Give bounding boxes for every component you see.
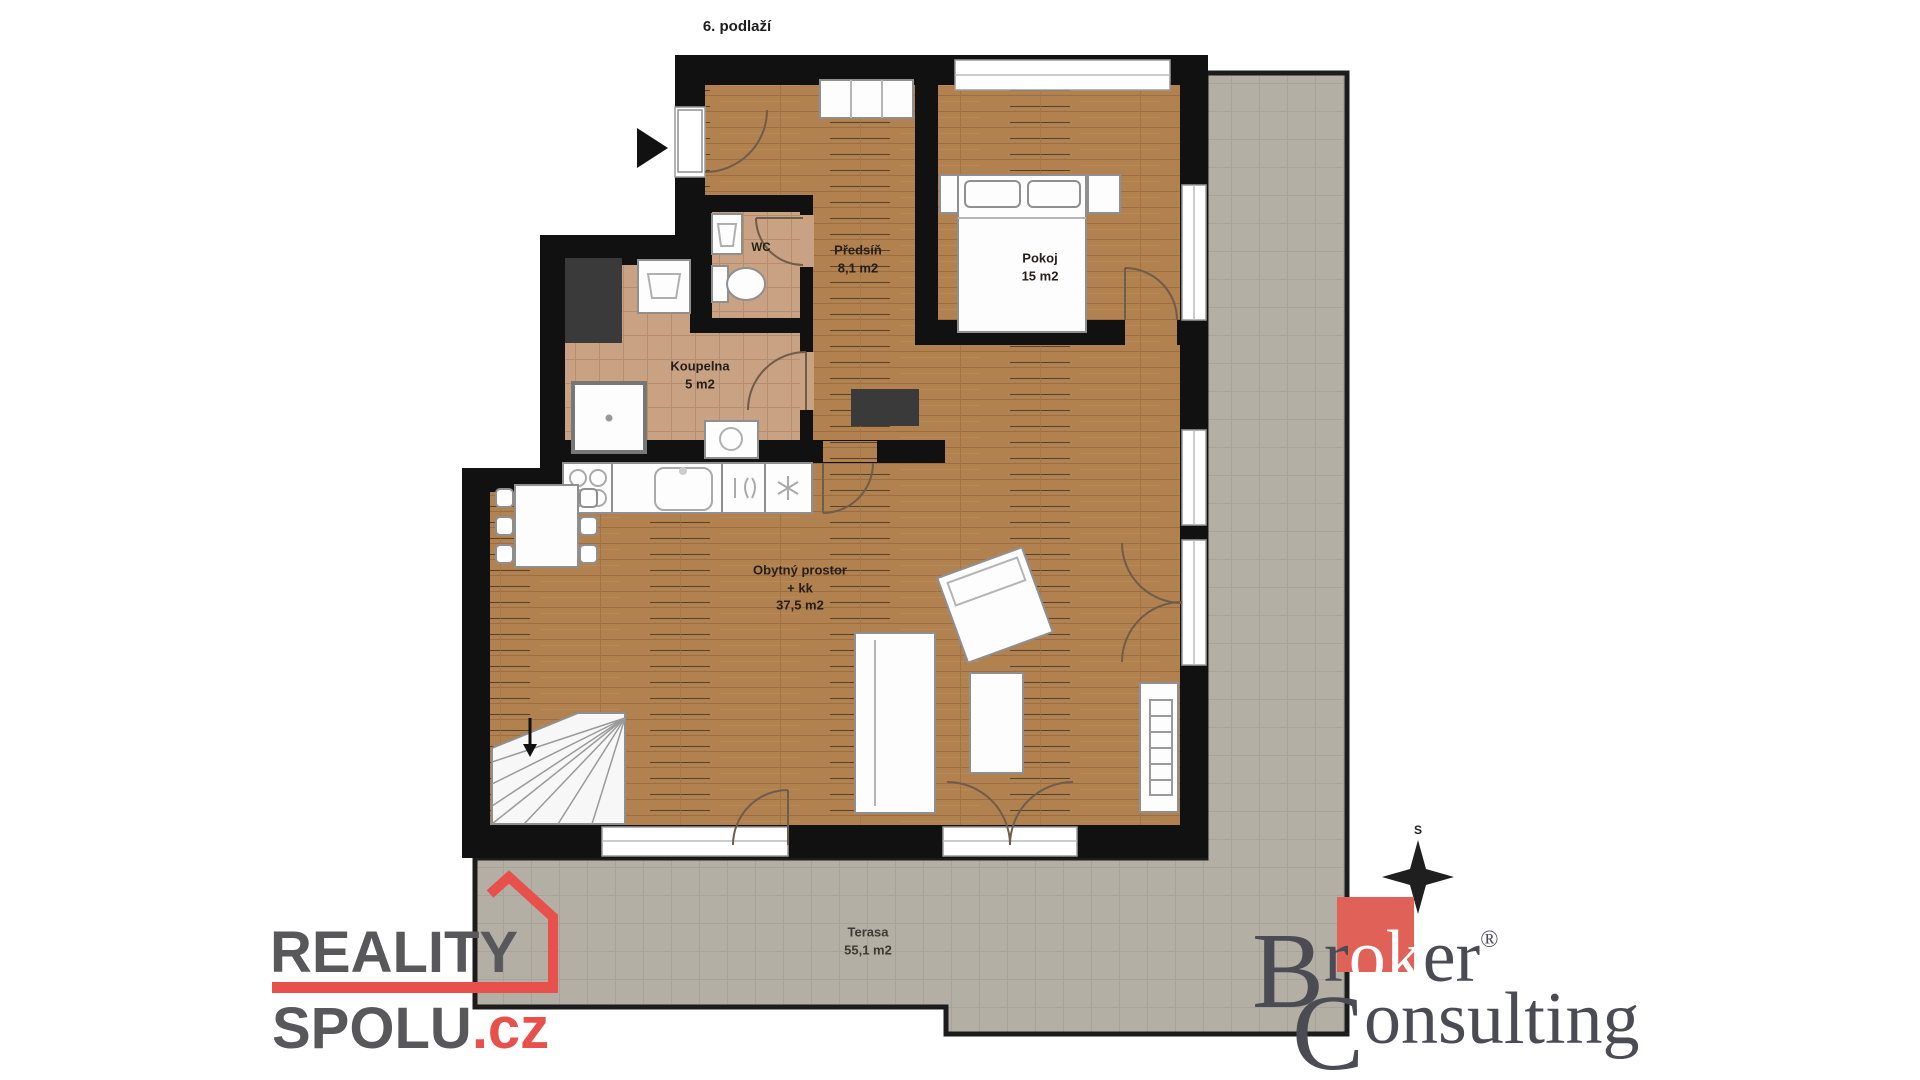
reality-logo-line1: REALITY [270, 924, 518, 982]
reality-logo-tld: .cz [472, 996, 549, 1061]
room-area: 8,1 m2 [834, 259, 882, 277]
consulting-rest: onsulting [1364, 978, 1639, 1060]
wc-basin [712, 214, 742, 254]
registered-trademark-icon: ® [1480, 927, 1498, 953]
shaft-corridor [851, 389, 919, 426]
hall-wardrobe [820, 80, 913, 118]
floor-plan-drawing [0, 0, 1920, 1080]
toilet-tank [712, 266, 728, 302]
nightstand-right [1088, 175, 1120, 213]
room-label-terasa: Terasa 55,1 m2 [844, 923, 892, 958]
room-label-predsin: Předsíň 8,1 m2 [834, 241, 882, 276]
room-sub: + kk [753, 579, 847, 597]
chair [580, 489, 597, 507]
reality-spolu-logo: REALITY SPOLU.cz [270, 924, 518, 982]
coffee-table [970, 673, 1023, 773]
chair [580, 545, 597, 563]
entrance-arrow-icon [637, 128, 668, 168]
room-name: Terasa [844, 923, 892, 941]
reality-logo-underline [272, 982, 555, 991]
room-name: Předsíň [834, 241, 882, 259]
pillow [965, 181, 1020, 207]
broker-logo-word2: Consulting [1292, 980, 1640, 1080]
chair [496, 489, 513, 507]
reality-logo-line2: SPOLU.cz [272, 1000, 549, 1058]
dining-table [515, 485, 578, 567]
entrance-door-leaf [678, 110, 702, 172]
washing-machine [705, 421, 758, 458]
floor-title: 6. podlaží [703, 17, 771, 37]
room-label-obytny: Obytný prostor + kk 37,5 m2 [753, 562, 847, 615]
room-label-wc: WC [751, 241, 770, 257]
room-area: 15 m2 [1022, 267, 1059, 285]
chair [496, 545, 513, 563]
room-area: 37,5 m2 [753, 597, 847, 615]
room-area: 5 m2 [670, 375, 729, 393]
nightstand-left [940, 175, 958, 213]
room-name: Pokoj [1022, 249, 1059, 267]
pillow [1028, 181, 1080, 207]
room-label-koupelna: Koupelna 5 m2 [670, 357, 729, 392]
room-area: 55,1 m2 [844, 941, 892, 959]
compass-north-label: S [1414, 823, 1422, 837]
chair [496, 517, 513, 535]
bath-basin [638, 260, 690, 313]
consulting-c: C [1292, 974, 1364, 1080]
chair [580, 517, 597, 535]
reality-logo-spolu: SPOLU [272, 996, 472, 1061]
shaft-bathroom [565, 258, 622, 343]
sofa [855, 633, 935, 813]
room-name: Koupelna [670, 357, 729, 375]
room-label-pokoj: Pokoj 15 m2 [1022, 249, 1059, 284]
floor-plan-page: 6. podlaží WC Předsíň 8,1 m2 Pokoj 15 m2… [0, 0, 1920, 1080]
dishwasher [722, 463, 765, 513]
broker-consulting-logo: Broker® Consulting [1252, 918, 1600, 1080]
room-name: Obytný prostor [753, 562, 847, 580]
toilet-bowl [727, 268, 765, 300]
kitchen-counter [612, 463, 722, 513]
